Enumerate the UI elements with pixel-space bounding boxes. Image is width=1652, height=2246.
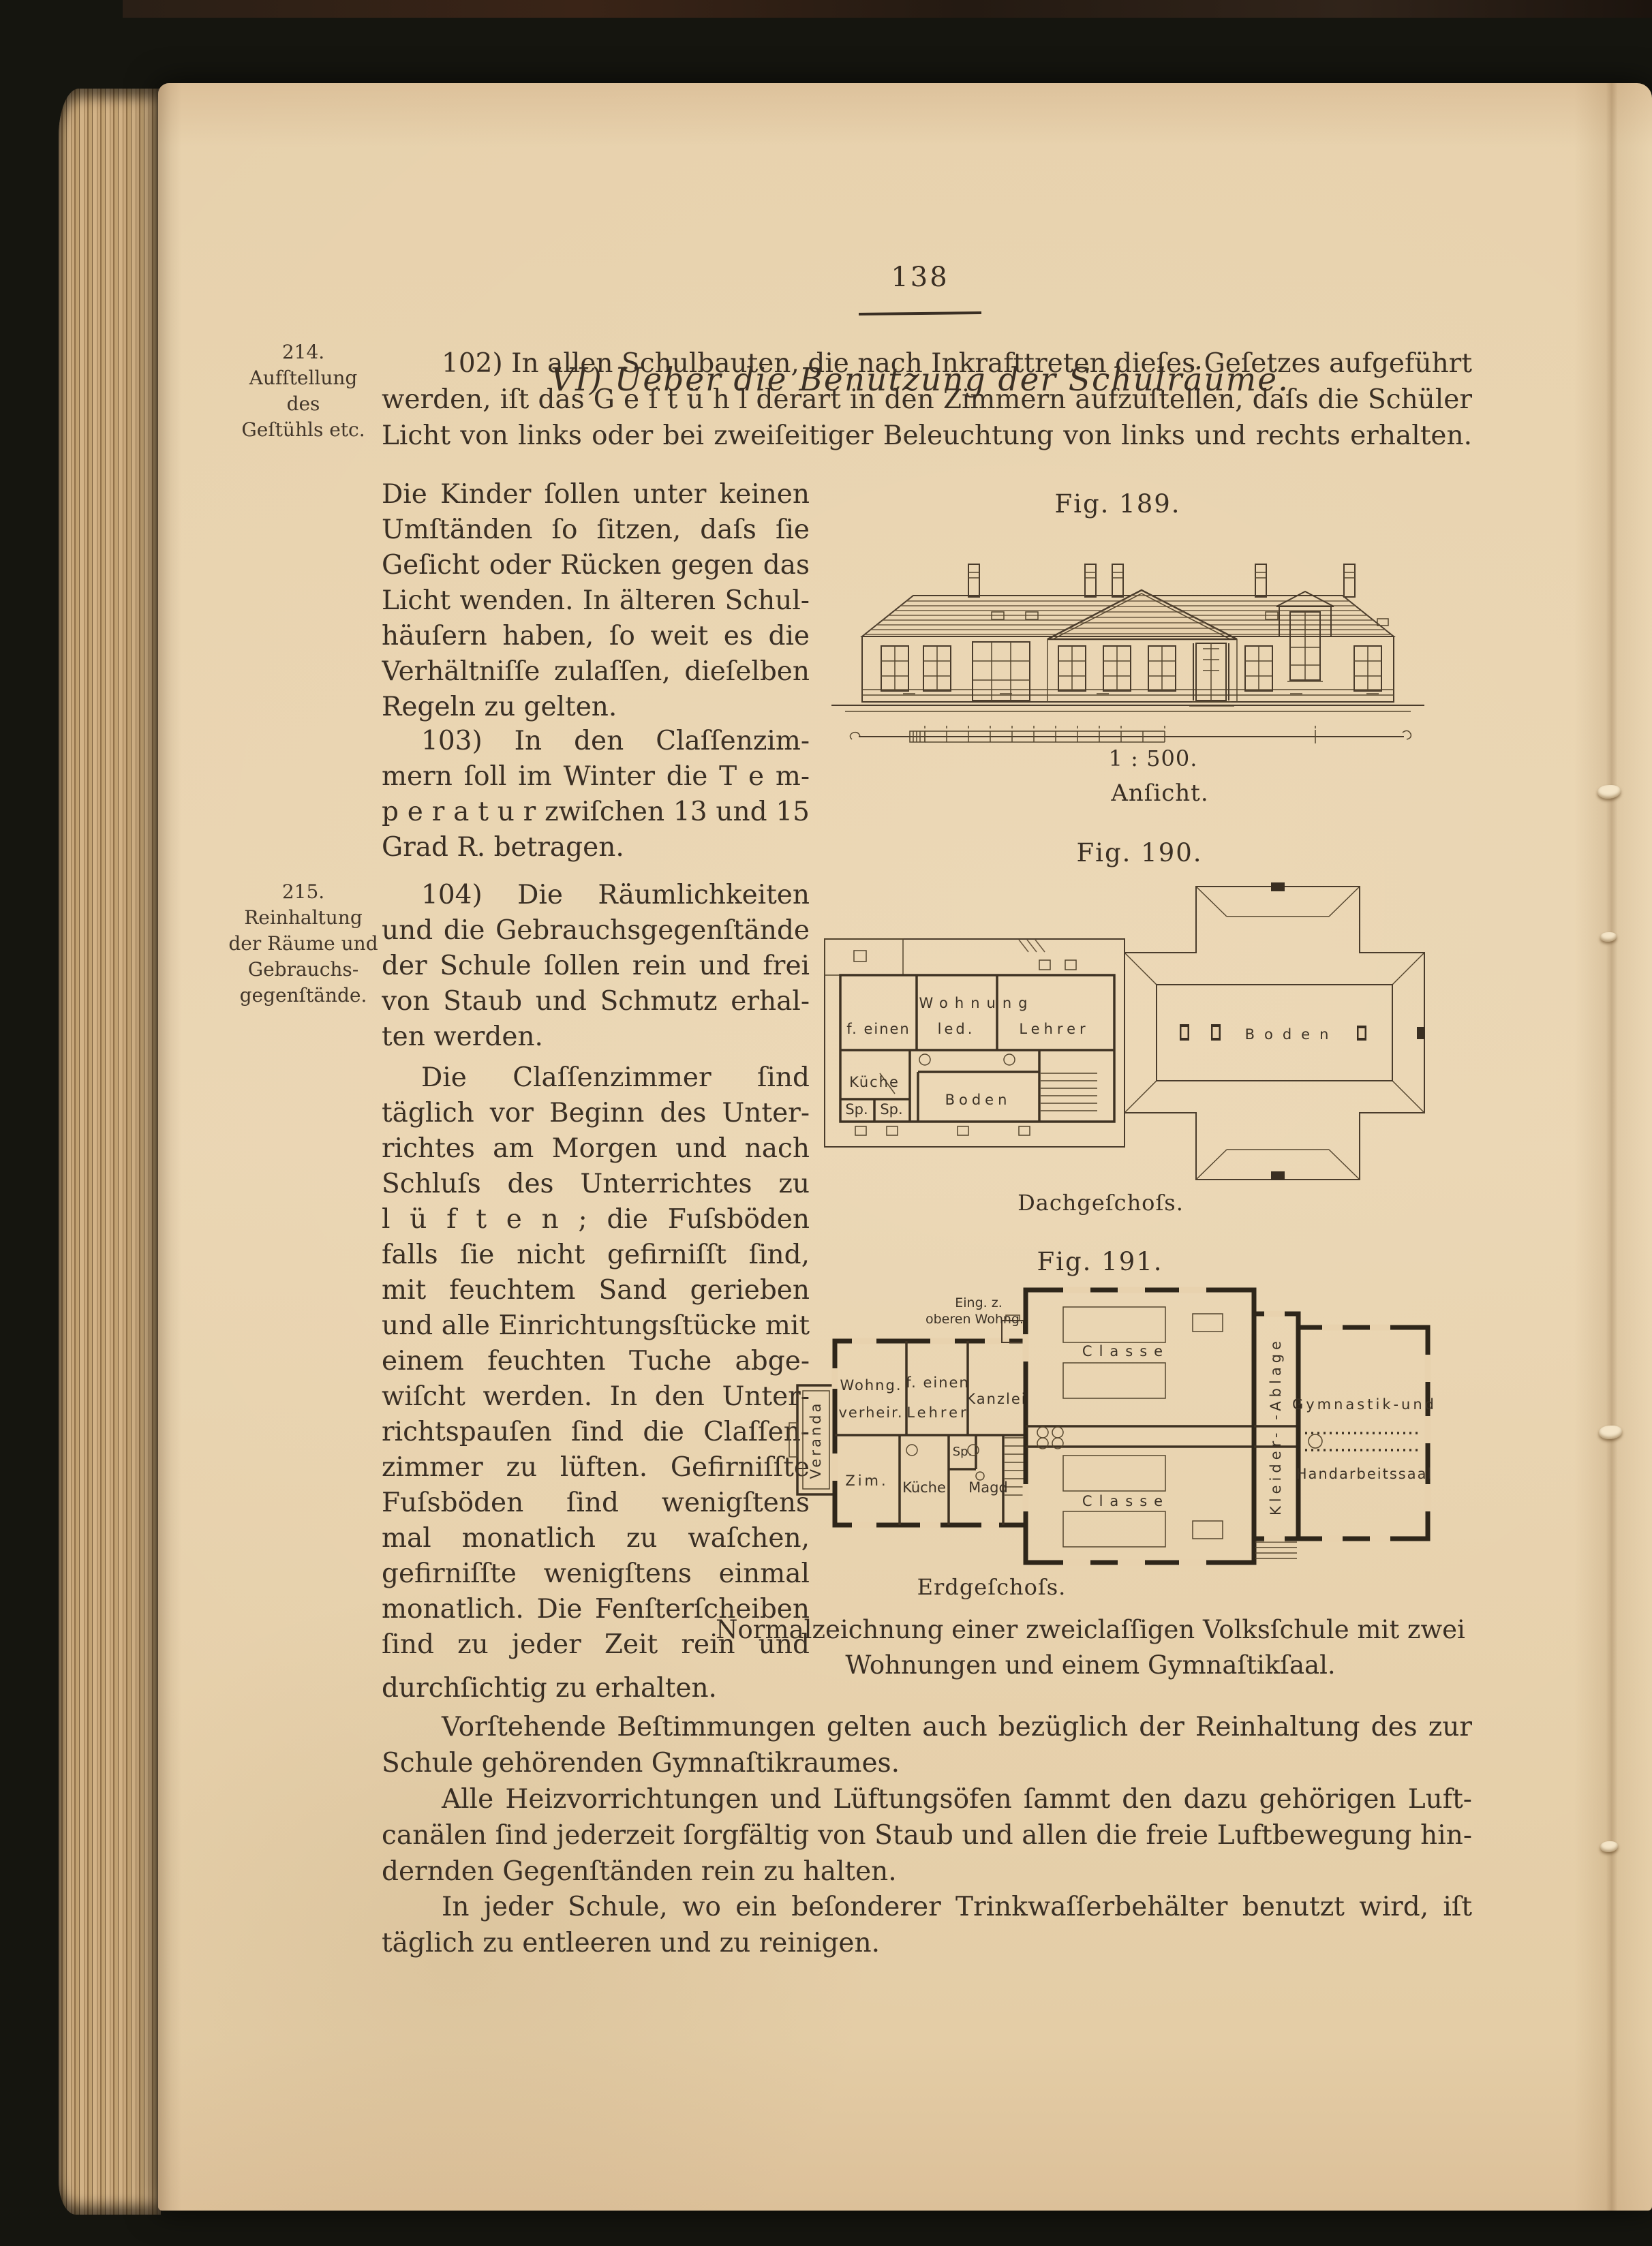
left-wing	[825, 939, 1125, 1147]
fig191-caption: Erdgeſchoſs.	[889, 1574, 1094, 1600]
room-label-boden-right: Boden	[1245, 1026, 1339, 1043]
text-line: Alle Heizvorrichtungen und Lüftungsöfen …	[382, 1781, 1472, 1817]
label-eingang-2: oberen Wohng.	[926, 1312, 1024, 1327]
room-label-zim: Zim.	[845, 1473, 888, 1489]
text-line: Die Claſſenzimmer ſind	[382, 1060, 810, 1096]
gutter-crease	[1574, 83, 1649, 2211]
paragraph-102: 102) In allen Schulbauten, die nach Inkr…	[382, 345, 1472, 454]
fig190-label: Fig. 190.	[1037, 838, 1242, 867]
text-line: Die Kinder ſollen unter keinen	[382, 477, 810, 512]
margin-note-number: 214.	[218, 339, 388, 365]
text-line: von Staub und Schmutz erhal-	[382, 984, 810, 1019]
gymnasium	[1298, 1327, 1428, 1539]
room-label-sp1: Sp.	[845, 1101, 868, 1118]
text-line: falls ſie nicht gefirniſſt ſind,	[382, 1237, 810, 1273]
text-line: dernden Gegenſtänden rein zu halten.	[382, 1853, 1472, 1890]
room-label-led: led.	[938, 1021, 975, 1037]
paragraph-102-continuation: Die Kinder ſollen unter keinenUmſtänden …	[382, 477, 810, 725]
text-line: 102) In allen Schulbauten, die nach Inkr…	[382, 345, 1472, 382]
text-line: Geſtühls etc.	[218, 417, 388, 443]
text-line: ten werden.	[382, 1019, 810, 1055]
margin-note-lines: AufſtellungdesGeſtühls etc.	[218, 365, 388, 443]
fig189-label: Fig. 189.	[1015, 489, 1220, 519]
paragraph-heizvorrichtungen: Alle Heizvorrichtungen und Lüftungsöfen …	[382, 1781, 1472, 1890]
room-label-verheir: verheir.	[838, 1404, 903, 1421]
margin-note-214: 214. AufſtellungdesGeſtühls etc.	[218, 339, 388, 443]
book-page: 138 VI) Ueber die Benutzung der Schulräu…	[158, 83, 1652, 2211]
school-block	[1026, 1290, 1254, 1563]
text-line: Schule gehörenden Gymnaſtikraumes.	[382, 1745, 1472, 1781]
text-line: richtes am Morgen und nach	[382, 1131, 810, 1167]
paragraph-103: 103) In den Claſſenzim-mern ſoll im Wint…	[382, 724, 810, 865]
text-line: mit feuchtem Sand gerieben	[382, 1273, 810, 1308]
text-line: häuſern haben, ſo weit es die	[382, 619, 810, 654]
text-line: gefirniſſte wenigſtens einmal	[382, 1556, 810, 1592]
room-label-kueche: Küche	[849, 1074, 900, 1090]
text-line: gegenſtände.	[218, 983, 388, 1009]
room-label-f-einen: f. einen	[846, 1021, 911, 1037]
room-label-classe-lower: Classe	[1082, 1493, 1169, 1509]
paragraph-104: 104) Die Räumlichkeitenund die Gebrauchs…	[382, 878, 810, 1055]
room-label-kleider-ablage: Kleider- -Ablage	[1268, 1337, 1284, 1516]
text-line: der Räume und	[218, 931, 388, 957]
text-line: 103) In den Claſſenzim-	[382, 724, 810, 759]
fig191-label: Fig. 191.	[998, 1247, 1202, 1276]
entrance-door	[1189, 639, 1234, 706]
margin-note-215: 215. Reinhaltungder Räume undGebrauchs-g…	[218, 879, 388, 1009]
text-line: p e r a t u r zwiſchen 13 und 15	[382, 795, 810, 830]
margin-note-lines: Reinhaltungder Räume undGebrauchs-gegenſ…	[218, 905, 388, 1009]
text-line: Verhältniſſe zulaſſen, dieſelben	[382, 654, 810, 690]
room-label-veranda: Veranda	[808, 1401, 824, 1479]
fig189-elevation-drawing	[821, 526, 1435, 730]
paragraph-trinkwasser: In jeder Schule, wo ein beſonderer Trink…	[382, 1889, 1472, 1961]
text-line: Gebrauchs-	[218, 957, 388, 983]
text-line: In jeder Schule, wo ein beſonderer Trink…	[382, 1889, 1472, 1925]
text-line: mal monatlich zu waſchen, nicht	[382, 1521, 810, 1556]
text-line: zimmer zu lüften. Gefirniſſte	[382, 1450, 810, 1486]
margin-note-number: 215.	[218, 879, 388, 905]
room-label-boden-left: Boden	[945, 1092, 1011, 1108]
room-label-f-einen: f. einen	[906, 1374, 970, 1391]
fig190-caption: Dachgeſchoſs.	[998, 1190, 1203, 1216]
text-line: Grad R. betragen.	[382, 830, 810, 865]
page-number: 138	[818, 262, 1022, 293]
label-eingang-1: Eing. z.	[955, 1295, 1002, 1310]
room-label-lehrer: Lehrer	[1019, 1021, 1089, 1037]
text-line: Normalzeichnung einer zweiclaſſigen Volk…	[716, 1612, 1465, 1648]
text-line: des	[218, 391, 388, 417]
room-label-classe-upper: Classe	[1082, 1343, 1169, 1359]
room-label-wohnung: Wohnung	[919, 995, 1035, 1011]
room-label-wohng: Wohng.	[840, 1377, 902, 1394]
page-number-underline	[859, 311, 981, 316]
fig189-caption: Anſicht.	[1058, 780, 1262, 807]
text-line: richtspauſen ſind die Claſſen-	[382, 1415, 810, 1450]
text-line: Regeln zu gelten.	[382, 690, 810, 725]
room-label-sp2: Sp.	[880, 1101, 902, 1118]
text-line: werden, iſt das G e ſ t ü h l derart in …	[382, 382, 1472, 418]
text-line: Licht von links oder bei zweiſeitiger Be…	[382, 418, 1472, 454]
paragraph-vorstehende: Vorſtehende Beſtimmungen gelten auch bez…	[382, 1709, 1472, 1781]
book-cover-edge	[123, 0, 1652, 18]
room-label-kanzlei: Kanzlei	[966, 1391, 1026, 1407]
fig191-caption-lines: Normalzeichnung einer zweiclaſſigen Volk…	[716, 1612, 1465, 1683]
room-label-gymnastik: Gymnastik-und	[1292, 1396, 1437, 1413]
room-label-lehrer: Lehrer	[906, 1404, 968, 1421]
pediment-gable	[1039, 590, 1244, 639]
text-line: Reinhaltung	[218, 905, 388, 931]
book-photo: 138 VI) Ueber die Benutzung der Schulräu…	[0, 0, 1652, 2246]
fig190-attic-plan: Boden Wohnung f. einen led.	[814, 874, 1435, 1188]
text-line: Schluſs des Unterrichtes zu	[382, 1167, 810, 1202]
text-line: Umſtänden ſo ſitzen, daſs ſie	[382, 512, 810, 548]
text-line: Vorſtehende Beſtimmungen gelten auch bez…	[382, 1709, 1472, 1745]
text-line: einem feuchten Tuche abge-	[382, 1344, 810, 1379]
room-label-sp: Sp.	[953, 1445, 973, 1459]
fig189-scale-text: 1 : 500.	[1051, 745, 1255, 771]
text-line: und alle Einrichtungsſtücke mit	[382, 1308, 810, 1344]
text-line: und die Gebrauchsgegenſtände	[382, 913, 810, 949]
paragraph-cleaning: Die Claſſenzimmer ſindtäglich vor Beginn…	[382, 1060, 810, 1663]
text-line: der Schule ſollen rein und frei	[382, 949, 810, 984]
text-line: mern ſoll im Winter die T e m-	[382, 759, 810, 795]
text-line: Geſicht oder Rücken gegen das	[382, 548, 810, 583]
room-label-handarbeitssaal: Handarbeitssaal	[1296, 1466, 1433, 1482]
text-line: Fuſsböden ſind wenigſtens zwei-	[382, 1486, 810, 1521]
text-line: täglich zu entleeren und zu reinigen.	[382, 1925, 1472, 1961]
text-line: Licht wenden. In älteren Schul-	[382, 583, 810, 619]
text-line: 104) Die Räumlichkeiten	[382, 878, 810, 913]
chimneys	[968, 564, 1355, 597]
page-stack-edges	[59, 89, 161, 2215]
text-line: l ü f t e n ; die Fuſsböden ſollen,	[382, 1202, 810, 1237]
text-line: wiſcht werden. In den Unter-	[382, 1379, 810, 1415]
fig191-groundfloor-plan: Veranda Wohng. verheir. f. einen Lehrer …	[777, 1280, 1445, 1573]
text-line: canälen ſind jederzeit ſorgfältig von St…	[382, 1817, 1472, 1853]
room-label-magd: Magd	[968, 1479, 1008, 1496]
text-line: täglich vor Beginn des Unter-	[382, 1096, 810, 1131]
text-line: Aufſtellung	[218, 365, 388, 391]
text-line: Wohnungen und einem Gymnaſtikſaal.	[716, 1648, 1465, 1683]
room-label-kueche: Küche	[902, 1479, 946, 1496]
